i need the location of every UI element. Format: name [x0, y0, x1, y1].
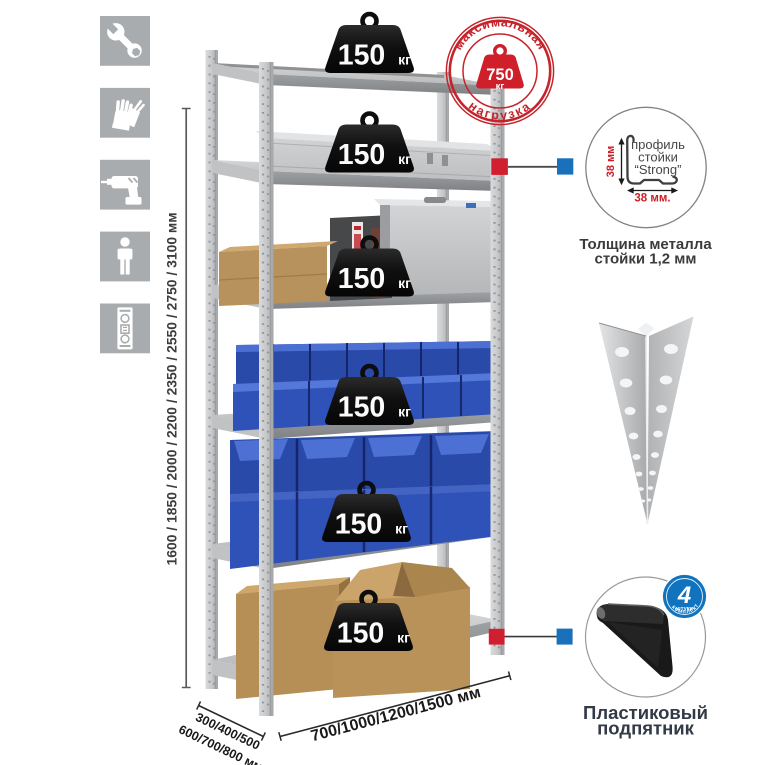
svg-text:подпятник: подпятник	[597, 718, 695, 739]
svg-text:1600 / 1850 / 2000 / 2200 / 23: 1600 / 1850 / 2000 / 2200 / 2350 / 2550 …	[165, 212, 180, 565]
svg-text:150: 150	[337, 618, 385, 650]
svg-text:150: 150	[338, 40, 386, 72]
svg-text:4: 4	[677, 582, 691, 609]
svg-text:38 мм: 38 мм	[605, 146, 617, 178]
svg-text:кг: кг	[496, 81, 505, 92]
svg-text:кг: кг	[398, 275, 411, 291]
svg-text:кг: кг	[395, 521, 408, 537]
svg-text:150: 150	[335, 509, 383, 541]
svg-text:кг: кг	[398, 404, 411, 420]
svg-text:кг: кг	[398, 52, 411, 68]
svg-text:кг: кг	[397, 630, 410, 646]
svg-text:“Strong”: “Strong”	[635, 162, 682, 177]
svg-text:150: 150	[338, 139, 386, 171]
svg-text:кг: кг	[398, 151, 411, 167]
svg-text:38 мм.: 38 мм.	[634, 193, 670, 205]
svg-text:150: 150	[338, 392, 386, 424]
svg-text:150: 150	[338, 263, 386, 295]
svg-text:стойки 1,2 мм: стойки 1,2 мм	[595, 251, 697, 268]
